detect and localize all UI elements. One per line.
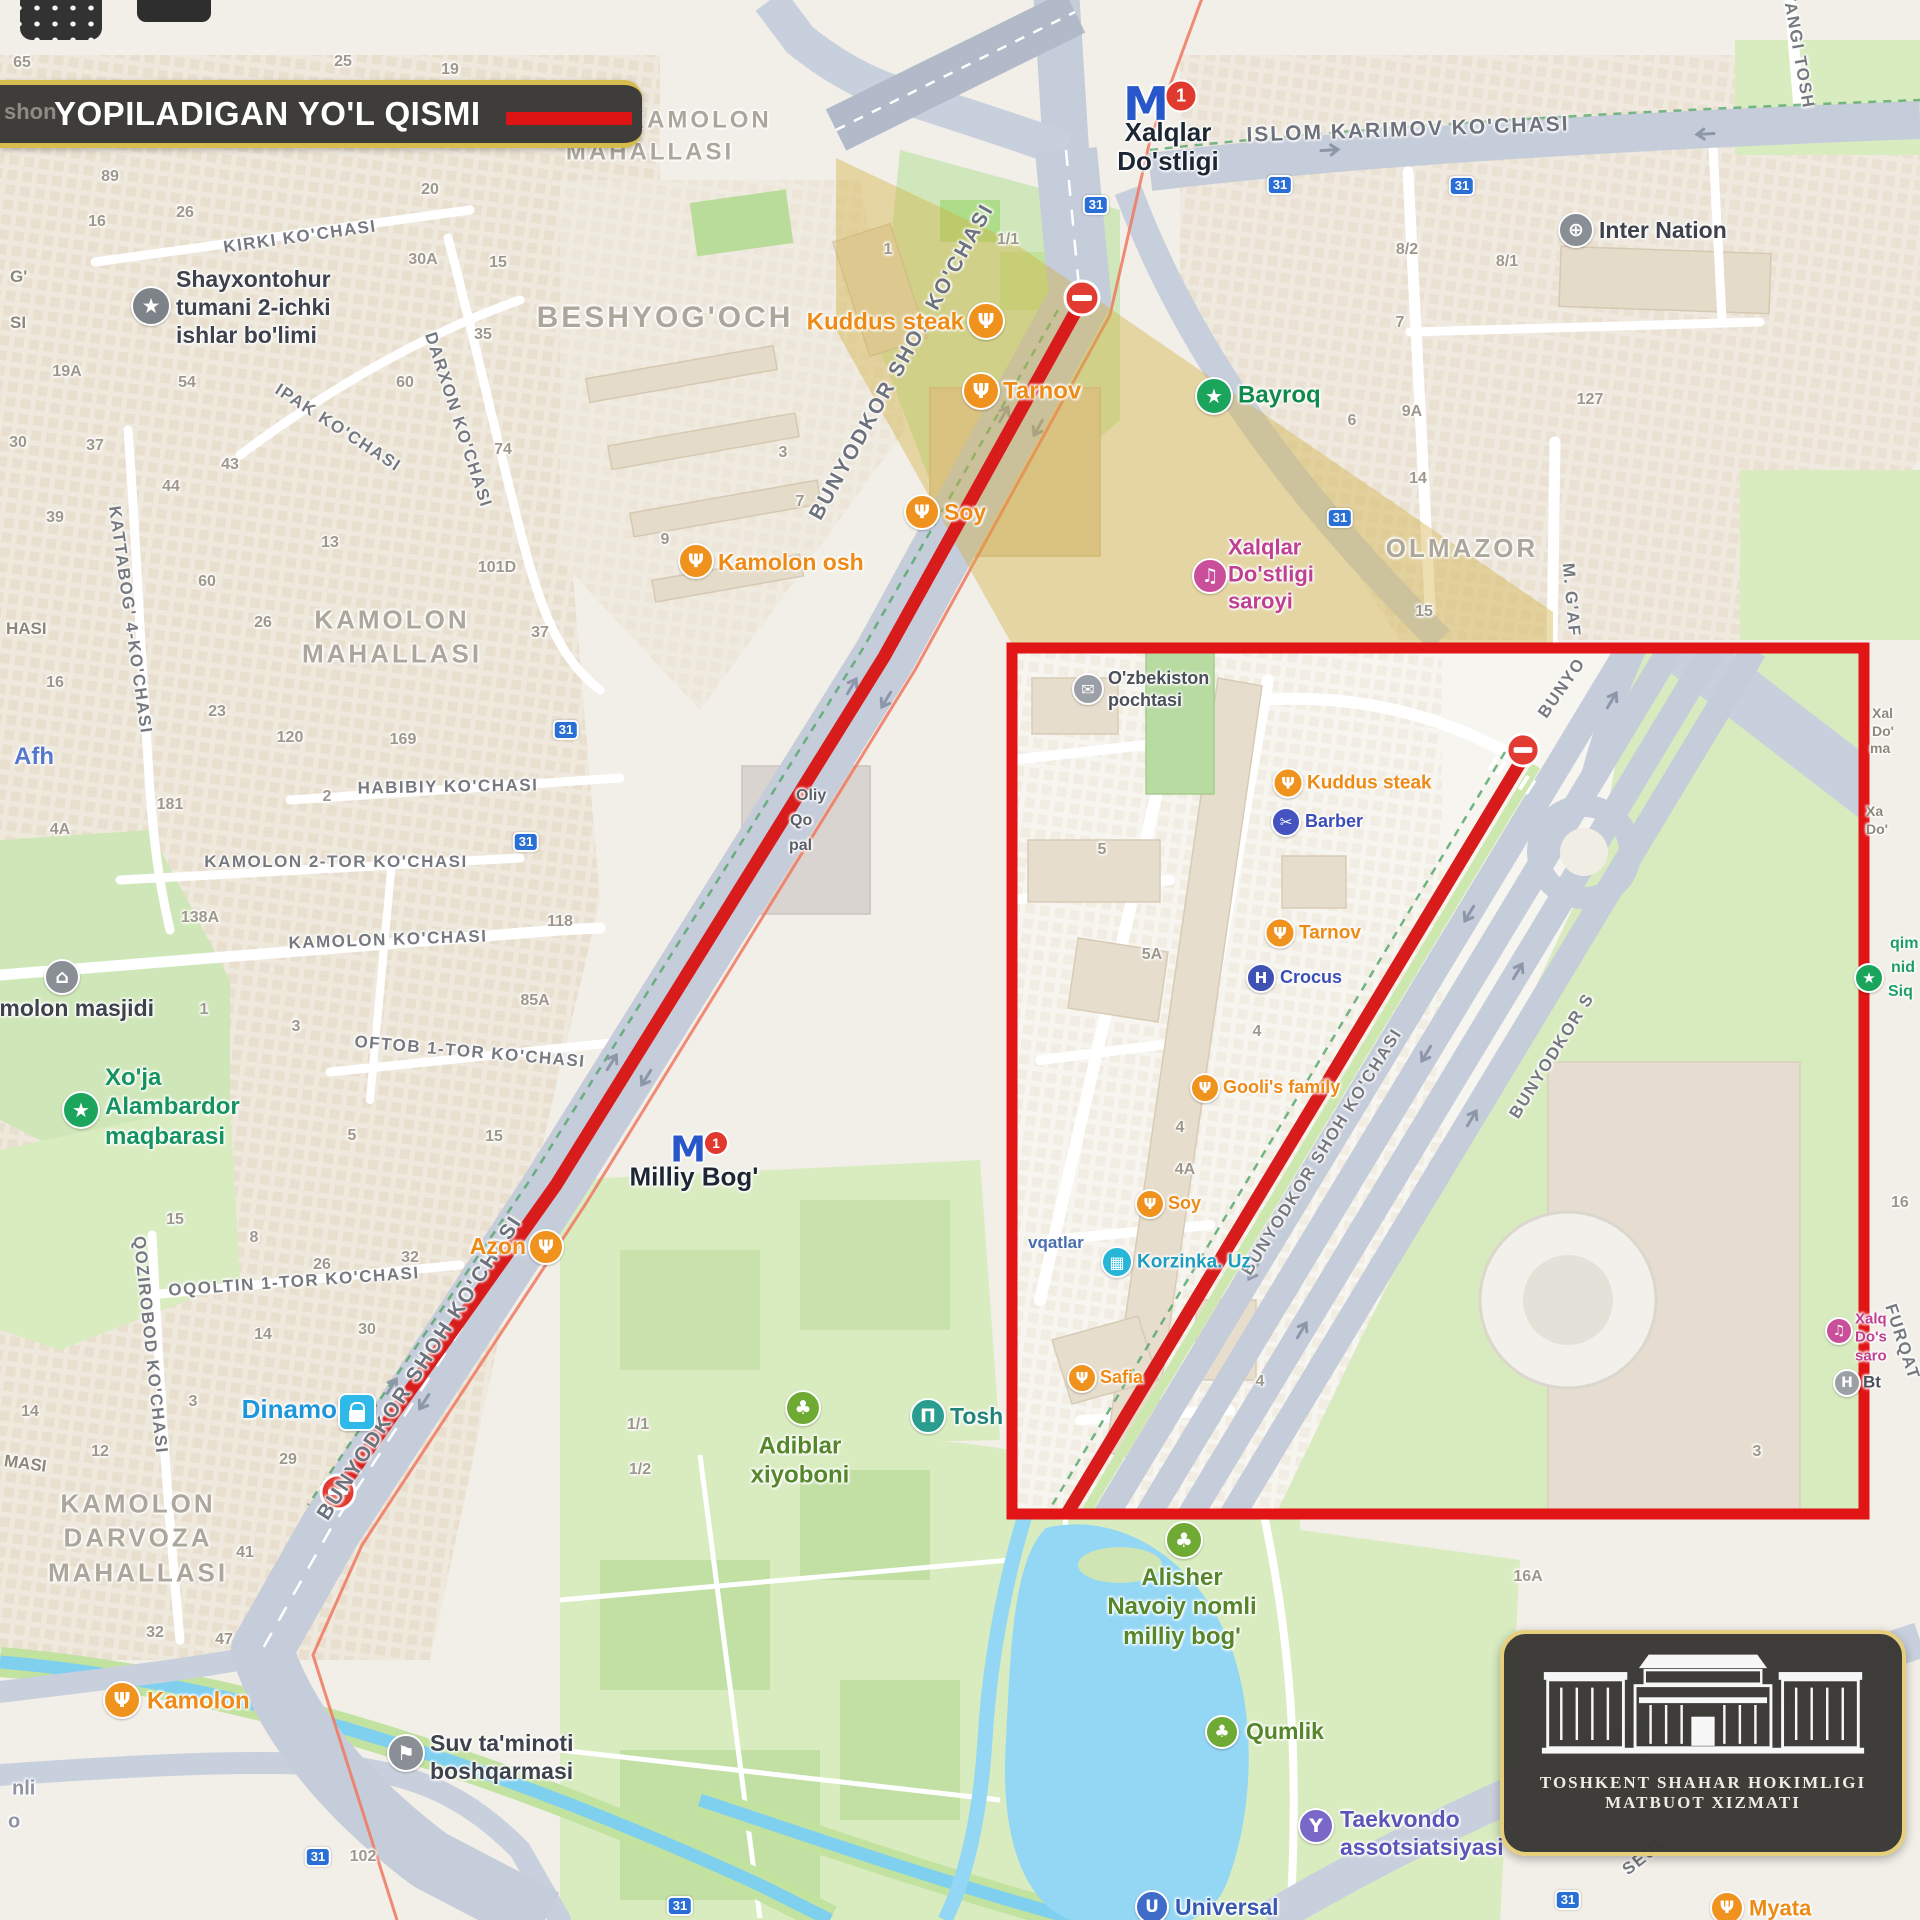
shayxontohur-ichki-ishlar-label: Shayxontohurtumani 2-ichkiishlar bo'limi [176,265,331,349]
house-number: 60 [396,374,414,392]
street-label: QOZIROBOD KO'CHASI [129,1235,172,1455]
house-number: 5 [348,1127,357,1145]
app-icon-partial-2 [137,0,211,22]
map-text-fragment: SI [10,313,26,333]
house-number: 65 [13,54,31,72]
azon-icon: Ψ [528,1229,564,1265]
street-label: IPAK KO'CHASI [271,380,404,476]
house-number: 9A [1402,403,1422,421]
house-number: 4 [1176,1119,1185,1137]
xalqlar-saroyi-inset-label: XalqDo'ssaro [1855,1311,1887,1366]
xalqlar-dostligi-saroyi-icon: ♫ [1192,558,1228,594]
house-number: 1/1 [627,1416,649,1434]
house-number: 29 [279,1451,297,1469]
house-number: 16 [88,213,106,231]
house-number: 14 [254,1326,272,1344]
house-number: 4 [1256,1373,1265,1391]
kamolon-osh-icon: Ψ [678,543,714,579]
house-number: 85A [520,992,549,1010]
street-label: BUNYO [1534,654,1590,722]
house-number: 118 [547,913,573,931]
crocus-label: Crocus [1280,967,1342,989]
house-number: 6 [1348,412,1357,430]
korzinka-uz-icon: ▦ [1101,1246,1133,1278]
milliy-bog-metro-label: Milliy Bog' [630,1162,759,1191]
map-text-fragment: shon [4,99,57,125]
house-number: 32 [401,1249,419,1267]
closure-banner: shon YOPILADIGAN YO'L QISMI [0,80,642,148]
house-number: 3 [189,1393,198,1411]
road-number-badge: 31 [553,720,579,740]
house-number: 4A [1175,1161,1195,1179]
street-label: KIRKI KO'CHASI [222,216,378,257]
tarnov-inset-icon: Ψ [1265,918,1296,949]
house-number: 30 [9,434,27,452]
house-number: 101D [478,559,516,577]
ozbekiston-pochtasi-label: O'zbekistonpochtasi [1108,668,1209,712]
house-number: 7 [1396,314,1405,332]
street-label: ISLOM KARIMOV KO'CHASI [1246,112,1570,147]
road-number-badge: 31 [1449,176,1475,196]
alisher-navoiy-park-label: AlisherNavoiy nomlimilliy bog' [1107,1563,1256,1651]
inter-nation-label: Inter Nation [1599,216,1727,244]
soy-inset-label: Soy [1168,1193,1201,1215]
house-number: 44 [162,478,180,496]
map-text-fragment: 16 [1891,1194,1909,1212]
road-number-badge: 31 [1555,1890,1581,1910]
area-label: OLMAZOR [1386,531,1538,565]
taekvondo-assotsiatsiyasi-label: Taekvondoassotsiatsiyasi [1340,1805,1504,1861]
safia-icon: Ψ [1067,1363,1097,1393]
tarnov-icon: Ψ [962,372,1000,410]
map-text-fragment: nli [12,1778,35,1801]
adiblar-xiyoboni-label: Adiblarxiyoboni [751,1432,850,1491]
green-star-right-icon: ★ [1854,963,1884,993]
house-number: 20 [421,181,439,199]
street-label: KATTABOG' 4-KO'CHASI [104,505,156,736]
road-number-badge: 31 [513,832,539,852]
house-number: 26 [254,614,272,632]
street-label: BUNYODKOR SHOH KO'CHASI [805,200,999,525]
house-number: 89 [101,168,119,186]
banner-title: YOPILADIGAN YO'L QISMI [54,95,481,133]
house-number: 30A [408,251,437,269]
inter-nation-icon: ⊕ [1558,212,1594,248]
house-number: 13 [321,534,339,552]
xalqlar-saroyi-inset-icon: ♫ [1825,1317,1853,1345]
taekvondo-assotsiatsiyasi-icon: Y [1298,1808,1334,1844]
house-number: 16 [46,674,64,692]
house-number: 120 [277,729,304,747]
xalqlar-dostligi-metro-line-badge: 1 [1165,80,1198,113]
bayroq-label: Bayroq [1238,380,1321,409]
milliy-bog-metro-line-badge: 1 [703,1130,729,1156]
ozbekiston-pochtasi-icon: ✉ [1072,673,1104,705]
xalqlar-dostligi-metro-label: XalqlarDo'stligi [1117,118,1219,176]
korzinka-uz-label: Korzinka. Uz [1137,1250,1251,1273]
street-label: OFTOB 1-TOR KO'CHASI [354,1032,587,1072]
suv-taminoti-boshqarmasi-label: Suv ta'minotiboshqarmasi [430,1729,573,1785]
kamolon-masjidi-icon: ⌂ [44,959,80,995]
barber-icon: ✂ [1271,807,1301,837]
house-number: 15 [1415,603,1433,621]
map-text-fragment: ma [1870,740,1890,756]
map-text-fragment: Afh [14,743,54,771]
kamolon-osh-label: Kamolon osh [718,548,864,576]
qumlik-label: Qumlik [1246,1717,1324,1745]
house-number: 25 [334,53,352,71]
closed-road-legend-line [506,112,632,125]
app-icon-partial [20,0,102,40]
map-text-fragment: Xal [1872,705,1893,721]
house-number: 1/1 [997,231,1019,249]
map-poster: KIRKI KO'CHASIIPAK KO'CHASIDARXON KO'CHA… [0,0,1920,1920]
kuddus-steak-inset-icon: Ψ [1273,768,1304,799]
house-number: 102 [350,1848,377,1866]
house-number: 4A [50,821,70,839]
dinamo-label: Dinamo [242,1394,337,1426]
tosh-museum-icon: Π [910,1398,946,1434]
universal-label: Universal [1175,1893,1279,1920]
alisher-navoiy-park-icon: ♣ [1165,1521,1203,1559]
kamolon-masjidi-label: Kamolon masjidi [0,994,154,1022]
logo-line2: MATBUOT XIZMATI [1504,1793,1902,1813]
barber-label: Barber [1305,811,1363,833]
house-number: 3 [292,1018,301,1036]
road-number-badge: 31 [1267,175,1293,195]
bt-icon: H [1833,1369,1861,1397]
house-number: 39 [46,509,64,527]
qumlik-icon: ♣ [1205,1715,1239,1749]
house-number: 60 [198,573,216,591]
kuddus-steak-icon: Ψ [967,302,1005,340]
tarnov-inset-label: Tarnov [1299,921,1361,944]
street-label: BUNYODKOR SHOH KO'CHASI [1237,1025,1406,1279]
xoja-alambardor-maqbarasi-icon: ★ [62,1091,100,1129]
safia-label: Safia [1100,1367,1143,1389]
house-number: 19A [52,363,81,381]
bt-label: Bt [1863,1373,1881,1394]
house-number: 41 [236,1544,254,1562]
soy-icon: Ψ [904,494,940,530]
house-number: 37 [86,437,104,455]
street-label: M. G'AF [1558,562,1584,638]
street-label: KAMOLON 2-TOR KO'CHASI [204,852,467,872]
house-number: 169 [390,731,417,749]
house-number: 32 [146,1624,164,1642]
shayxontohur-ichki-ishlar-icon: ★ [131,286,171,326]
house-number: 4 [1253,1023,1262,1041]
map-text-fragment: vqatlar [1028,1233,1084,1253]
hokimiyat-logo: TOSHKENT SHAHAR HOKIMLIGI MATBUOT XIZMAT… [1500,1630,1906,1856]
house-number: 8/2 [1396,241,1418,259]
house-number: 14 [21,1403,39,1421]
house-number: 1 [200,1001,209,1019]
tarnov-label: Tarnov [1003,376,1081,405]
kuddus-steak-label: Kuddus steak [807,307,964,336]
street-label: DARXON KO'CHASI [420,330,496,511]
house-number: 74 [494,441,512,459]
azon-label: Azon [470,1232,526,1260]
house-number: 127 [1577,391,1604,409]
house-number: 54 [178,374,196,392]
map-text-fragment: nid [1891,959,1915,977]
house-number: 2 [323,788,332,806]
goolis-family-icon: Ψ [1190,1073,1220,1103]
street-label: KAMOLON KO'CHASI [288,927,488,954]
map-text-fragment: Siq [1888,983,1913,1001]
road-number-badge: 31 [667,1896,693,1916]
map-text-fragment: Do' [1872,723,1894,739]
area-label: KAMOLONMAHALLASI [302,603,482,672]
area-label: KAMOLONDARVOZAMAHALLASI [48,1487,228,1590]
kuddus-steak-inset-label: Kuddus steak [1307,771,1432,794]
map-text-fragment: qim [1890,935,1918,953]
street-label: HABIBIY KO'CHASI [357,775,538,798]
soy-label: Soy [944,498,986,526]
house-number: 47 [215,1631,233,1649]
tosh-museum-label: Tosh [950,1402,1003,1430]
map-text-fragment: Xa [1866,803,1883,819]
dinamo-icon [338,1393,376,1431]
bayroq-icon: ★ [1195,377,1233,415]
universal-icon: U [1135,1890,1169,1920]
house-number: 138A [181,909,219,927]
house-number: 3 [1753,1443,1762,1461]
map-text-fragment: Oliy [796,787,826,805]
goolis-family-label: Gooli's family [1223,1077,1340,1099]
house-number: 43 [221,456,239,474]
house-number: 9 [661,531,670,549]
house-number: 8/1 [1496,253,1518,271]
house-number: 16A [1513,1568,1542,1586]
house-number: 15 [485,1128,503,1146]
house-number: 15 [489,254,507,272]
map-text-fragment: pal [789,837,812,855]
logo-line1: TOSHKENT SHAHAR HOKIMLIGI [1504,1773,1902,1793]
myata-icon: Ψ [1710,1891,1744,1920]
adiblar-xiyoboni-icon: ♣ [785,1390,821,1426]
house-number: 12 [91,1443,109,1461]
street-label: BUNYODKOR S [1505,990,1598,1123]
house-number: 14 [1409,470,1427,488]
xalqlar-dostligi-saroyi-label: XalqlarDo'stligisaroyi [1228,535,1314,616]
house-number: 1/2 [629,1461,651,1479]
house-number: 8 [250,1229,259,1247]
map-text-fragment: o [8,1811,20,1834]
house-number: 5A [1142,946,1162,964]
house-number: 181 [157,796,184,814]
street-label: YANGI TOSH [1778,0,1818,110]
area-label: BESHYOG'OCH [537,298,794,338]
myata-label: Myata [1749,1896,1811,1920]
house-number: 1 [884,241,893,259]
xoja-alambardor-maqbarasi-label: Xo'jaAlambardormaqbarasi [105,1063,240,1151]
crocus-icon: H [1246,963,1276,993]
map-text-fragment: HASI [6,619,47,639]
house-number: 5 [1098,841,1107,859]
map-text-fragment: Do' [1866,821,1888,837]
house-number: 26 [176,204,194,222]
kamolon-cafe-label: Kamolon [147,1686,250,1715]
logo-building-icon [1538,1648,1868,1766]
road-number-badge: 31 [305,1847,331,1867]
house-number: 19 [441,61,459,79]
soy-inset-icon: Ψ [1135,1189,1165,1219]
map-text-fragment: G' [10,267,27,287]
road-number-badge: 31 [1327,508,1353,528]
suv-taminoti-boshqarmasi-icon: ⚑ [387,1734,425,1772]
kamolon-cafe-icon: Ψ [103,1681,141,1719]
house-number: 30 [358,1321,376,1339]
road-number-badge: 31 [1083,195,1109,215]
house-number: 7 [796,493,805,511]
street-label: OQOLTIN 1-TOR KO'CHASI [168,1263,421,1301]
map-text-fragment: Qo [790,812,812,830]
house-number: 26 [313,1256,331,1274]
map-text-fragment: MASI [3,1451,48,1477]
house-number: 35 [474,326,492,344]
house-number: 3 [779,444,788,462]
house-number: 15 [166,1211,184,1229]
house-number: 37 [531,624,549,642]
house-number: 23 [208,703,226,721]
